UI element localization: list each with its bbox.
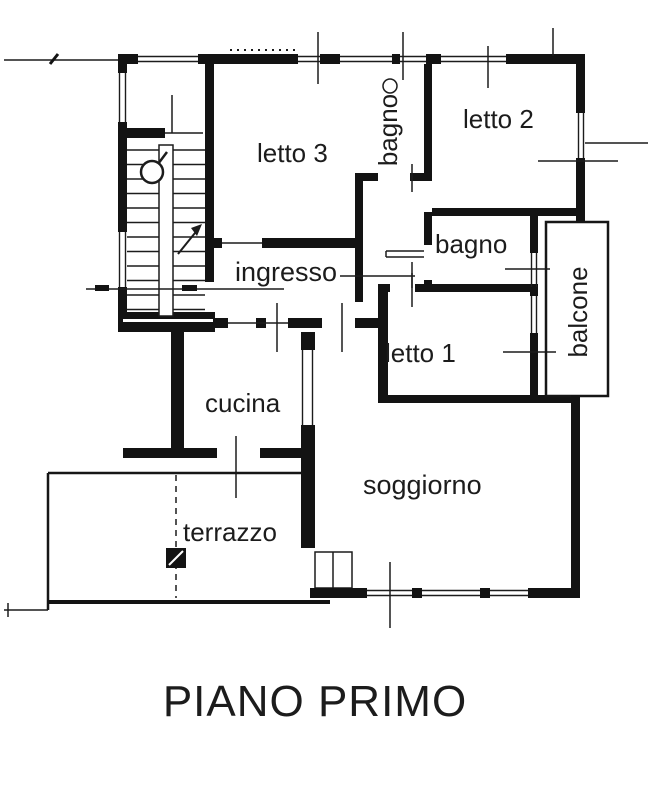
room-label-soggiorno: soggiorno [363,470,482,500]
apartment-entrance-door-gap [203,282,216,312]
stair-handrail-symbol [141,161,163,183]
terrace-steps [315,552,352,588]
room-label-cucina: cucina [205,388,281,418]
room-label-balcone: balcone [563,266,593,357]
exterior-right-wall [538,54,618,222]
room-label-letto2: letto 2 [463,104,534,134]
stairwell [86,52,284,332]
room-label-terrazzo: terrazzo [183,517,277,547]
room-label-bagno-mid: bagno [435,229,507,259]
exterior-top-wall [212,28,585,88]
bathroom-fixture-symbol [383,79,397,93]
bagno-door-leaf [386,251,424,257]
floor-plan-page: letto 3 bagno letto 2 bagno ingresso bal… [0,0,650,800]
floor-title: PIANO PRIMO [163,677,467,726]
room-label-letto1: letto 1 [385,338,456,368]
stair-direction-arrow [178,224,202,254]
room-label-ingresso: ingresso [235,257,337,287]
cucina-walls [123,332,315,548]
room-label-letto3: letto 3 [257,138,328,168]
soggiorno-walls [310,395,580,628]
floor-plan-drawing: letto 3 bagno letto 2 bagno ingresso bal… [0,0,650,800]
room-label-bagno-top: bagno [373,94,403,166]
